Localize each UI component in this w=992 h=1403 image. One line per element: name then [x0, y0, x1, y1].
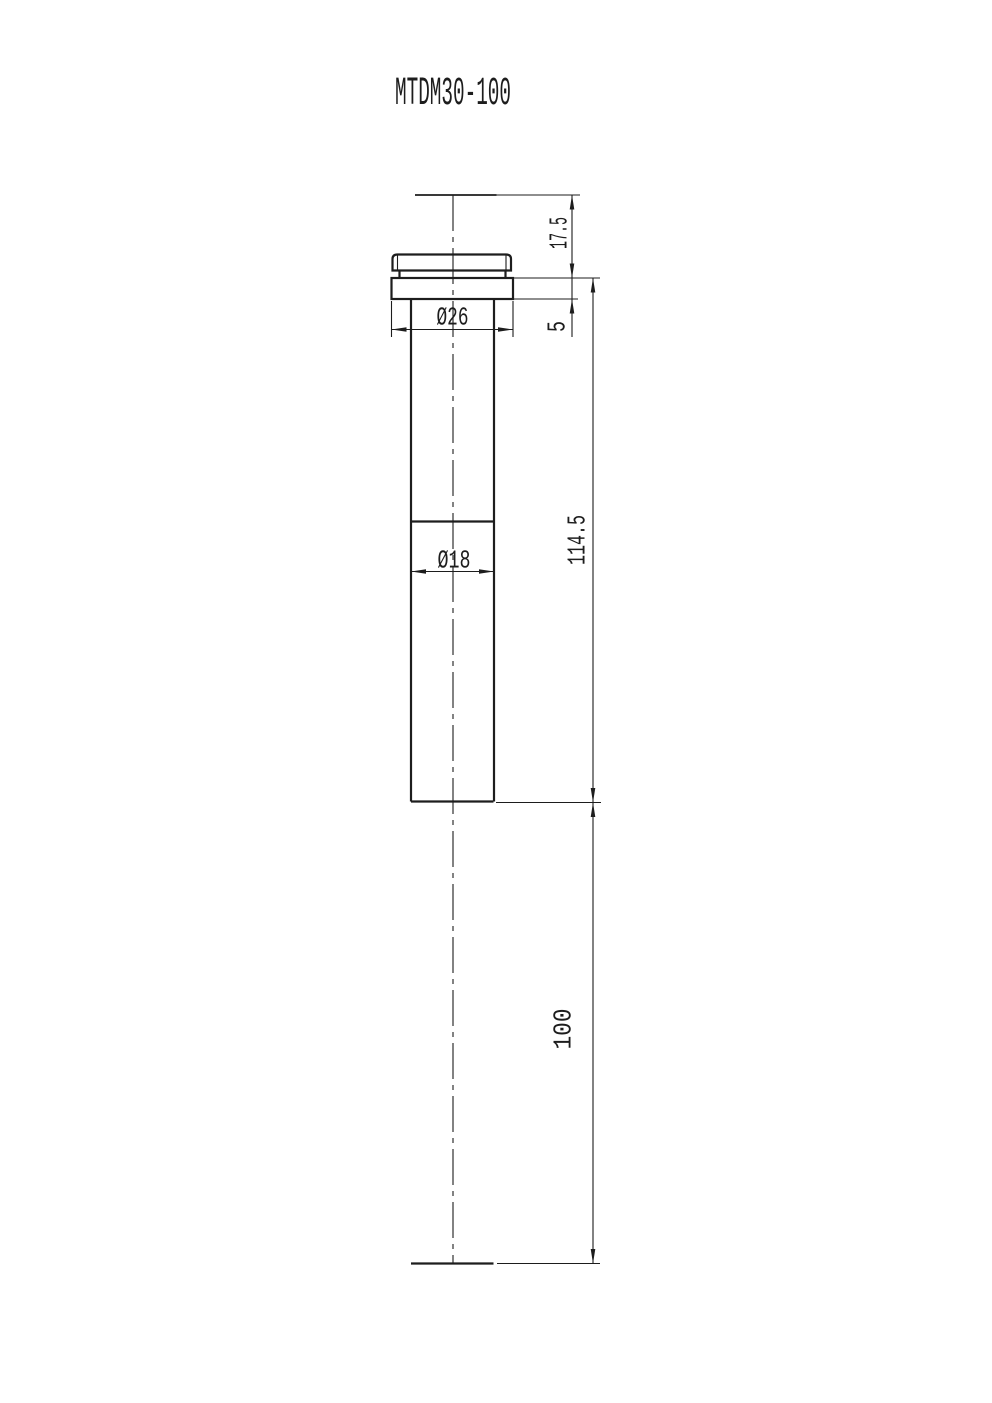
dim-label-114-5: 114.5 — [563, 515, 593, 565]
dimension-114-5: 114.5 — [563, 278, 596, 803]
dim-label-17-5: 17.5 — [545, 217, 575, 249]
flange-outline — [392, 278, 514, 299]
arrow-up-icon — [591, 803, 596, 818]
arrow-left-icon — [392, 327, 407, 332]
dim-label-dia-18: Ø18 — [438, 546, 471, 576]
dimension-100: 100 — [549, 803, 596, 1264]
arrow-down-icon — [591, 788, 596, 803]
arrow-up-icon — [570, 195, 575, 210]
dimension-5: 5 — [543, 278, 575, 337]
arrow-up-icon — [570, 299, 575, 314]
arrow-up-icon — [591, 278, 596, 293]
arrow-right-icon — [498, 327, 513, 332]
dim-label-100: 100 — [549, 1009, 579, 1050]
drawing-page: MTDM30-100 — [0, 0, 992, 1403]
part-view — [392, 195, 514, 1264]
dim-label-5: 5 — [543, 321, 573, 332]
extension-lines — [496, 195, 601, 1264]
dimension-dia-18: Ø18 — [411, 546, 494, 576]
drawing-title: MTDM30-100 — [395, 72, 511, 117]
technical-drawing: MTDM30-100 — [0, 0, 992, 1403]
arrow-down-icon — [570, 264, 575, 279]
arrow-down-icon — [591, 1249, 596, 1264]
dimension-17-5: 17.5 — [545, 195, 575, 278]
dim-label-dia-26: Ø26 — [437, 303, 469, 333]
arrow-left-icon — [411, 569, 426, 574]
cap-outline — [393, 255, 512, 271]
arrow-right-icon — [479, 569, 494, 574]
